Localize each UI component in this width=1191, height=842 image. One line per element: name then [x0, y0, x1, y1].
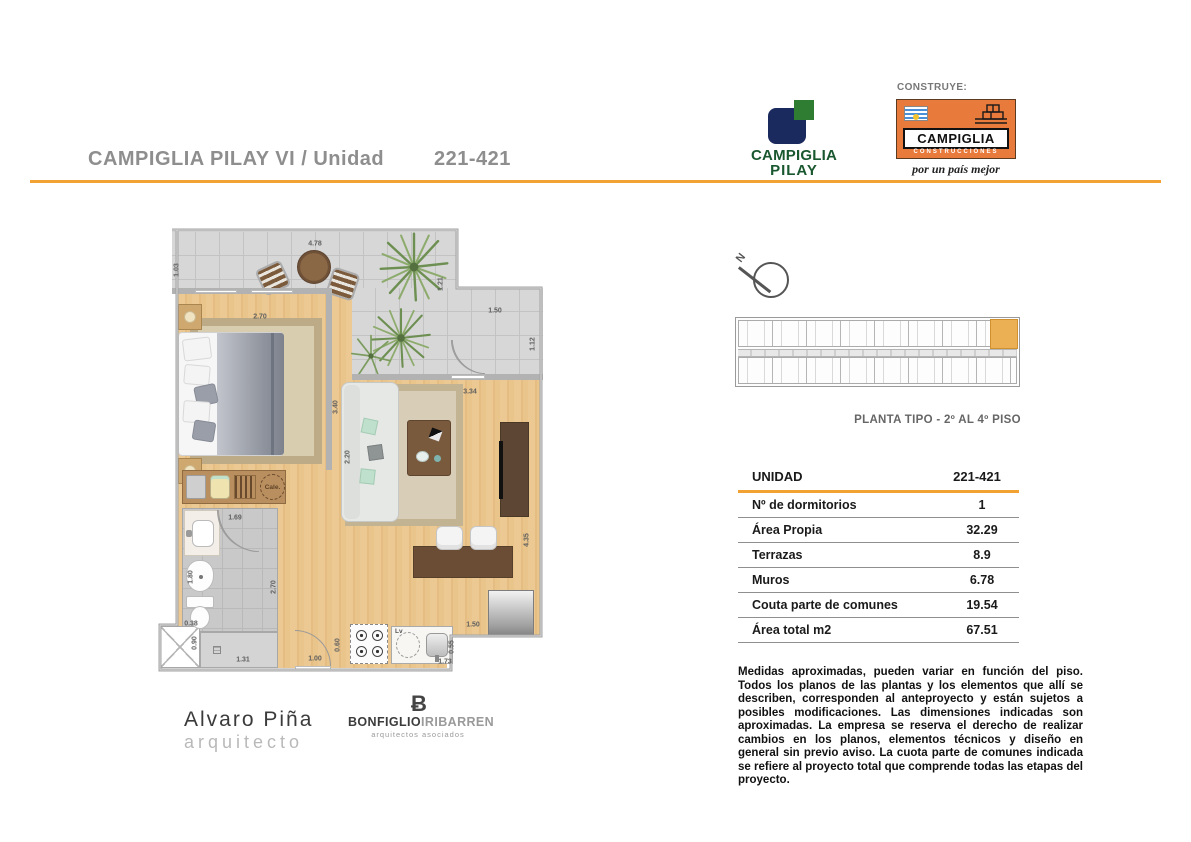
studio-name: BONFIGLIOIRIBARREN: [348, 714, 488, 730]
spec-table-row: Terrazas8.9: [738, 543, 1019, 568]
spec-row-value: 19.54: [959, 598, 1005, 612]
bidet-drain: [199, 575, 203, 579]
campiglia-construcciones-logo: CAMPIGLIA CONSTRUCCIONES: [896, 99, 1016, 159]
table-deco-cup: [434, 455, 441, 462]
spec-table-row: Couta parte de comunes19.54: [738, 593, 1019, 618]
living-top-wall: [352, 374, 543, 380]
unit-spec-table: UNIDAD 221-421 Nº de dormitorios1Área Pr…: [738, 466, 1019, 643]
tv-screen: [499, 441, 503, 499]
pillow: [192, 419, 217, 442]
dimension-label: 2.70: [253, 314, 267, 321]
burner-icon: [356, 630, 367, 641]
dimension-label: 4.35: [524, 533, 531, 547]
dimension-label: 1.50: [466, 622, 480, 629]
closet-box: [186, 475, 206, 499]
entry-door-opening: [295, 666, 331, 670]
header-rule: [30, 180, 1161, 183]
pilay-logo-line1: CAMPIGLIA: [742, 148, 846, 163]
building-key-plan: [735, 317, 1020, 387]
dimension-label: 0.60: [335, 638, 342, 652]
dimension-label: 4.78: [308, 241, 322, 248]
bedroom-right-wall: [326, 294, 332, 470]
table-deco-book: [428, 427, 442, 441]
north-circle: [753, 262, 789, 298]
window: [251, 290, 293, 293]
spec-table-row: Muros6.78: [738, 568, 1019, 593]
spec-table-row: Área Propia32.29: [738, 518, 1019, 543]
vanity: [184, 510, 220, 556]
closet-hangers: [234, 475, 256, 499]
dimension-label: 1.31: [236, 657, 250, 664]
spec-table-rows: Nº de dormitorios1Área Propia32.29Terraz…: [738, 493, 1019, 643]
flag-sun-icon: [913, 114, 919, 120]
shower-drain-icon: [213, 646, 221, 654]
spec-row-value: 8.9: [959, 548, 1005, 562]
lamp-icon: [184, 311, 196, 323]
sofa-cushion: [359, 468, 375, 484]
dimension-label: 1.21: [438, 277, 445, 291]
burner-icon: [372, 646, 383, 657]
dimension-label: 2.20: [345, 450, 352, 464]
unit-number: 221-421: [434, 148, 511, 171]
spec-row-value: 1: [959, 498, 1005, 512]
spec-row-label: Terrazas: [752, 548, 803, 562]
dimension-label: 1.12: [530, 337, 537, 351]
breakfast-bar: [413, 546, 513, 578]
window: [195, 290, 237, 293]
closet-clothes: [210, 475, 230, 499]
keyplan-units-bottom: [738, 357, 1017, 384]
dimension-label: 3.40: [333, 400, 340, 414]
construye-label: CONSTRUYE:: [897, 82, 967, 93]
page-title: CAMPIGLIA PILAY VI / Unidad: [88, 148, 384, 171]
spec-row-label: Nº de dormitorios: [752, 498, 857, 512]
plant-icon: [347, 332, 395, 380]
outside-cover: [447, 636, 547, 679]
tv-unit: [500, 422, 529, 517]
keyplan-corridor: [738, 349, 1017, 357]
architect-signature: Alvaro Piña arquitecto: [184, 708, 313, 753]
spec-row-value: 6.78: [959, 573, 1005, 587]
spec-header-value: 221-421: [949, 469, 1005, 484]
dishwasher-label: Lv: [395, 628, 403, 635]
keyplan-caption: PLANTA TIPO - 2º AL 4º PISO: [795, 414, 1080, 426]
table-deco-plate: [416, 451, 429, 462]
spec-header-label: UNIDAD: [752, 469, 803, 484]
dimension-label: 3.34: [463, 389, 477, 396]
bed: [178, 332, 284, 456]
north-label: N: [734, 251, 748, 265]
spec-row-label: Muros: [752, 573, 790, 587]
pillow: [183, 364, 211, 386]
spec-row-value: 67.51: [959, 623, 1005, 637]
dimension-label: 2.70: [271, 580, 278, 594]
spec-row-label: Área total m2: [752, 623, 831, 637]
pilay-logo-line2: PILAY: [742, 163, 846, 179]
dimension-label: 1.50: [488, 308, 502, 315]
studio-name-2: IRIBARREN: [421, 715, 494, 729]
studio-signature: Ƀ BONFIGLIOIRIBARREN arquitectos asociad…: [348, 694, 488, 739]
pilay-logo-green-square: [794, 100, 814, 120]
dimension-label: 1.69: [228, 515, 242, 522]
constructor-name: CAMPIGLIA: [903, 128, 1009, 149]
studio-subtitle: arquitectos asociados: [348, 730, 488, 739]
bar-stool: [470, 526, 497, 550]
closet: Cale.: [182, 470, 286, 504]
architect-title: arquitecto: [184, 732, 313, 753]
dishwasher: [396, 632, 420, 658]
fridge: [488, 590, 534, 636]
studio-name-1: BONFIGLIO: [348, 715, 421, 729]
dimension-label: 1.00: [308, 656, 322, 663]
north-arrow: N: [737, 252, 797, 307]
burner-icon: [372, 630, 383, 641]
burner-icon: [356, 646, 367, 657]
spec-table-row: Área total m267.51: [738, 618, 1019, 643]
building-sketch-icon: [973, 104, 1009, 126]
spec-table-row: Nº de dormitorios1: [738, 493, 1019, 518]
disclaimer-text: Medidas aproximadas, pueden variar en fu…: [738, 666, 1083, 788]
dimension-label: 0.38: [184, 621, 198, 628]
architect-name: Alvaro Piña: [184, 708, 313, 732]
dimension-label: 1.73: [438, 659, 452, 666]
constructor-tagline: por un país mejor: [896, 162, 1016, 177]
dimension-label: 1.03: [174, 263, 181, 277]
faucet-icon: [186, 530, 192, 537]
keyplan-units-top: [738, 320, 1017, 347]
constructor-subtitle: CONSTRUCCIONES: [897, 149, 1015, 155]
stove: [350, 624, 388, 664]
terrace-door-opening: [451, 375, 485, 379]
bar-stool: [436, 526, 463, 550]
dimension-label: 1.80: [188, 570, 195, 584]
pilay-logo-icon: [768, 100, 820, 144]
studio-logo-icon: Ƀ: [348, 694, 488, 714]
floor-plan: Cale.: [155, 224, 547, 679]
nightstand: [178, 304, 202, 330]
campiglia-pilay-logo: CAMPIGLIA PILAY: [742, 100, 846, 179]
spec-table-header: UNIDAD 221-421: [738, 466, 1019, 493]
sofa-cushion: [361, 418, 379, 436]
plan-sheet: CAMPIGLIA PILAY VI / Unidad 221-421 CAMP…: [0, 0, 1191, 842]
plant-icon: [377, 230, 451, 304]
pillow: [182, 336, 212, 361]
spec-row-value: 32.29: [959, 523, 1005, 537]
kitchen-sink: [426, 633, 448, 657]
dimension-label: 0.55: [449, 640, 456, 654]
highlighted-unit: [990, 319, 1018, 349]
spec-row-label: Couta parte de comunes: [752, 598, 898, 612]
bed-fold: [271, 333, 274, 455]
spec-row-label: Área Propia: [752, 523, 822, 537]
sofa-cushion: [367, 444, 384, 461]
terrace-table: [297, 250, 331, 284]
basin: [192, 520, 214, 547]
dimension-label: 0.90: [192, 636, 199, 650]
water-heater: Cale.: [260, 474, 285, 500]
uruguay-flag-icon: [904, 106, 928, 121]
coffee-table: [407, 420, 451, 476]
